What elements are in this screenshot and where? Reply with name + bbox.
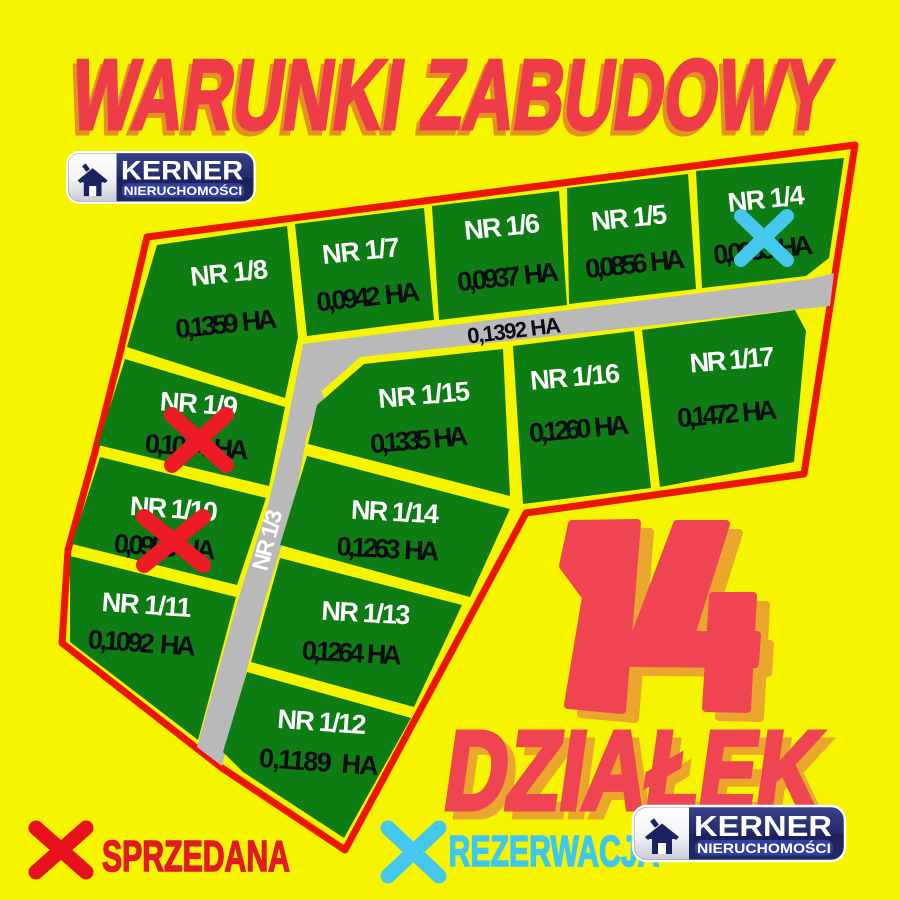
svg-text:0,1264 HA: 0,1264 HA: [301, 635, 402, 670]
svg-text:WARUNKI ZABUDOWY: WARUNKI ZABUDOWY: [65, 39, 839, 150]
svg-text:0,1263 HA: 0,1263 HA: [336, 531, 440, 566]
svg-text:SPRZEDANA: SPRZEDANA: [102, 832, 290, 881]
svg-text:REZERWACJA: REZERWACJA: [449, 827, 660, 876]
svg-text:NR 1/12: NR 1/12: [276, 704, 367, 740]
svg-text:NR 1/13: NR 1/13: [321, 596, 411, 631]
svg-text:NR 1/11: NR 1/11: [101, 587, 193, 623]
svg-text:NR 1/14: NR 1/14: [350, 495, 439, 530]
